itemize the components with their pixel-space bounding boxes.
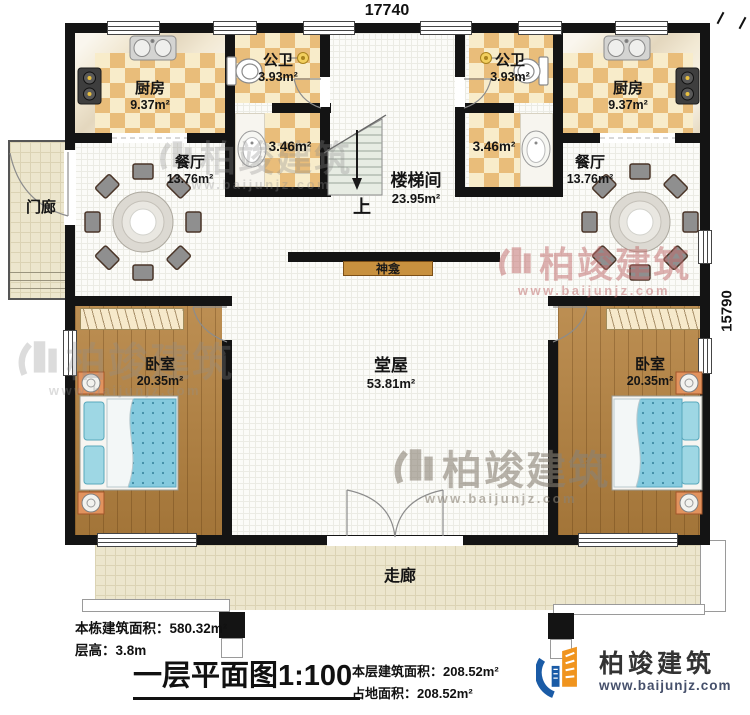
land-area-label: 占地面积： <box>352 686 417 701</box>
kitchen-sink-right <box>604 36 650 60</box>
room-label-kitchen-right: 厨房 9.37m² <box>608 80 648 113</box>
land-area-line: 占地面积：208.52m² <box>352 683 473 702</box>
brand-text-block: 柏竣建筑 www.baijunjz.com <box>599 651 732 692</box>
brand-logo: 柏竣建筑 www.baijunjz.com <box>536 644 732 700</box>
stove-right <box>676 68 699 104</box>
building-area-label: 本栋建筑面积： <box>75 621 170 636</box>
floor-plan: 神龛 <box>0 0 750 715</box>
brand-logo-icon <box>536 644 590 700</box>
room-label-porch: 门廊 <box>26 198 56 217</box>
dimension-top: 17740 <box>365 2 410 20</box>
room-label-bedroom-right: 卧室 20.35m² <box>627 356 674 389</box>
wash-basin-left <box>238 131 266 167</box>
bed-left <box>80 396 178 490</box>
room-label-bedroom-left: 卧室 20.35m² <box>137 356 184 389</box>
room-label-wash-left: 3.46m² <box>269 139 312 155</box>
room-label-dining-right: 餐厅 13.76m² <box>567 154 614 187</box>
room-label-bath-left: 公卫 3.93m² <box>258 52 298 85</box>
wash-basin-right <box>522 131 550 167</box>
floor-area-value: 208.52m² <box>443 664 499 679</box>
room-label-bath-right: 公卫 3.93m² <box>490 52 530 85</box>
room-label-kitchen-left: 厨房 9.37m² <box>130 80 170 113</box>
stove-left <box>78 68 101 104</box>
nightstand <box>78 492 104 514</box>
nightstand <box>676 372 702 394</box>
brand-name: 柏竣建筑 <box>599 651 732 677</box>
floor-area-line: 本层建筑面积：208.52m² <box>352 661 499 680</box>
room-label-corridor: 走廊 <box>384 567 416 586</box>
floor-height-label: 层高： <box>75 643 116 658</box>
stairs-up-label: 上 <box>353 197 371 219</box>
bed-right <box>612 396 702 490</box>
room-label-stairwell: 楼梯间 23.95m² <box>391 171 442 207</box>
dimension-right: 15790 <box>719 290 736 332</box>
building-area-line: 本栋建筑面积：580.32m² <box>75 617 227 637</box>
kitchen-sink-left <box>130 36 176 60</box>
room-label-hall: 堂屋 53.81m² <box>367 356 415 392</box>
floor-area-label: 本层建筑面积： <box>352 664 443 679</box>
room-label-wash-right: 3.46m² <box>473 139 516 155</box>
nightstand <box>78 372 104 394</box>
toilet-left <box>227 57 262 85</box>
room-label-dining-left: 餐厅 13.76m² <box>167 154 214 187</box>
building-area-value: 580.32m² <box>170 621 228 636</box>
brand-url: www.baijunjz.com <box>599 678 732 693</box>
plan-title: 一层平面图1:100 <box>133 652 360 700</box>
staircase <box>324 115 386 195</box>
land-area-value: 208.52m² <box>417 686 473 701</box>
nightstand <box>676 492 702 514</box>
